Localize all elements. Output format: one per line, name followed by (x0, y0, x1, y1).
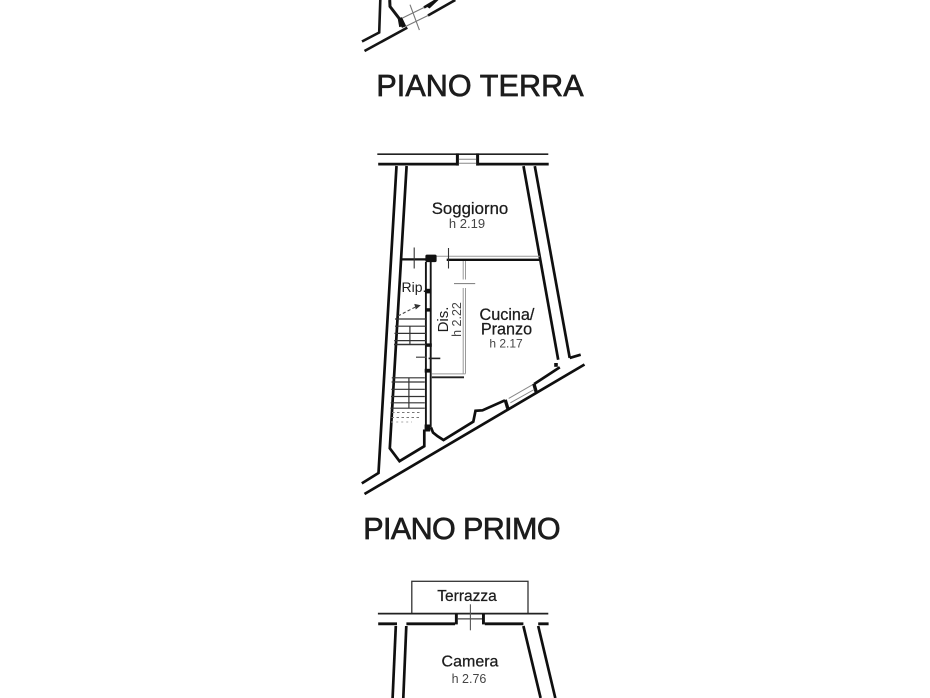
svg-text:h 2.22: h 2.22 (450, 302, 464, 337)
svg-text:PIANO TERRA: PIANO TERRA (376, 69, 584, 103)
svg-text:h 2.19: h 2.19 (449, 216, 485, 231)
svg-text:Rip.: Rip. (402, 279, 427, 295)
svg-text:PIANO PRIMO: PIANO PRIMO (363, 512, 560, 546)
svg-text:h 2.17: h 2.17 (489, 337, 523, 351)
svg-text:Terrazza: Terrazza (437, 588, 497, 605)
svg-text:Camera: Camera (442, 654, 499, 671)
svg-text:h 2.76: h 2.76 (452, 672, 487, 686)
svg-text:Soggiorno: Soggiorno (432, 199, 509, 218)
